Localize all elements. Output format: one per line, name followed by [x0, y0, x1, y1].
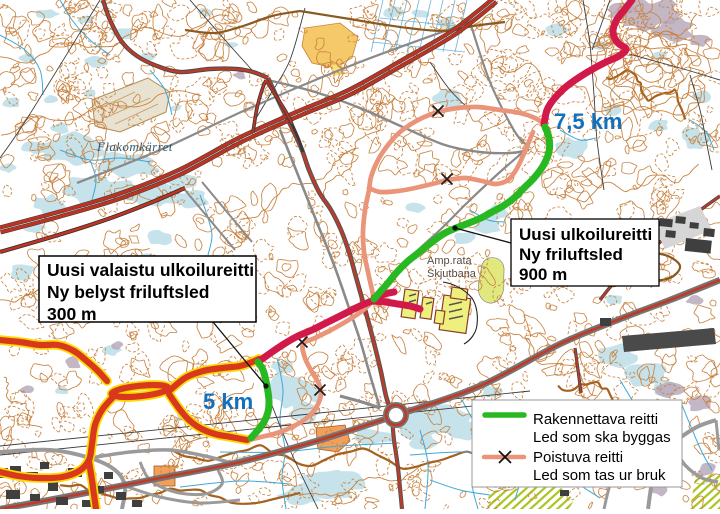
svg-text:Rakennettava reitti: Rakennettava reitti	[533, 411, 658, 428]
svg-text:Led som tas ur bruk: Led som tas ur bruk	[533, 467, 666, 484]
svg-text:5 km: 5 km	[203, 389, 253, 414]
svg-text:Ny friluftsled: Ny friluftsled	[519, 245, 623, 264]
svg-text:Skjutbana: Skjutbana	[427, 268, 477, 280]
svg-text:Amp.rata: Amp.rata	[427, 255, 473, 267]
svg-text:7,5 km: 7,5 km	[554, 109, 623, 134]
svg-text:Uusi valaistu ulkoilureitti: Uusi valaistu ulkoilureitti	[47, 260, 254, 280]
svg-text:Poistuva reitti: Poistuva reitti	[533, 449, 623, 466]
svg-text:Ny belyst friluftsled: Ny belyst friluftsled	[47, 282, 209, 302]
svg-text:900 m: 900 m	[519, 265, 567, 284]
svg-text:Uusi ulkoilureitti: Uusi ulkoilureitti	[519, 225, 652, 244]
svg-text:300 m: 300 m	[47, 304, 97, 324]
svg-text:Flakomkärret: Flakomkärret	[96, 139, 173, 154]
svg-text:Led som ska byggas: Led som ska byggas	[533, 429, 671, 446]
